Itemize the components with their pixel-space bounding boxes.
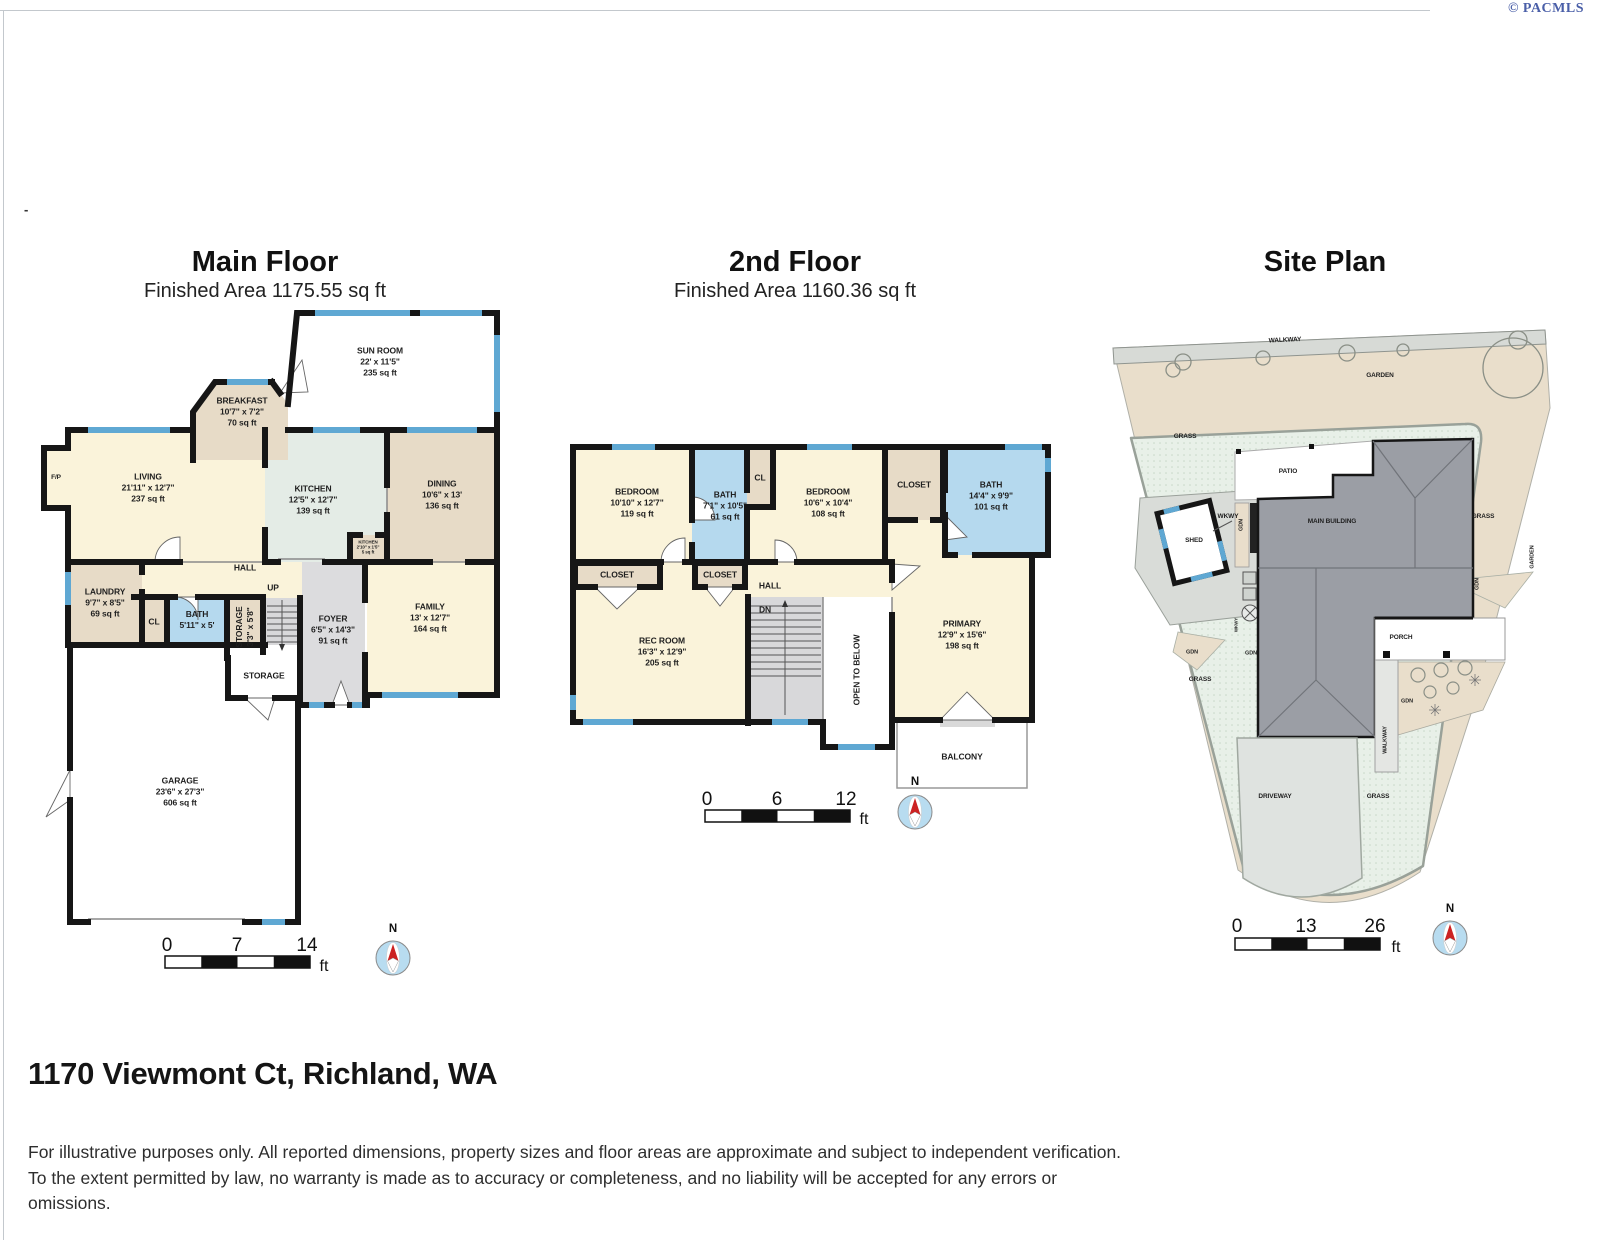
room-dims: 12'9" x 15'6" [938, 629, 987, 640]
label-gdn-w: GDN [1186, 649, 1198, 656]
room-dims: 10'10" x 12'7" [610, 497, 663, 508]
utility-box-2 [1243, 588, 1256, 600]
room-name: PRIMARY [938, 618, 987, 629]
room-label-foyer: FOYER 6'5" x 14'3" 91 sq ft [311, 613, 355, 646]
main-compass [376, 941, 410, 975]
label-grass-e: GRASS [1472, 513, 1495, 521]
label-garden-e: GARDEN [1529, 545, 1536, 568]
scale-unit: ft [1392, 939, 1401, 957]
room-name: BATH [180, 609, 215, 620]
room-name: BATH [703, 489, 747, 500]
room-area: 205 sq ft [638, 658, 687, 669]
label-walkway-top: WALKWAY [1269, 336, 1302, 346]
room-name: REC ROOM [638, 635, 687, 646]
room-name: DINING [422, 478, 462, 489]
porch-post-2 [1443, 651, 1450, 658]
site-plan-title: Site Plan [1125, 246, 1525, 279]
room-area: 69 sq ft [85, 609, 126, 620]
second-floor-plan: BEDROOM 10'10" x 12'7" 119 sq ft BATH 7'… [555, 430, 1055, 850]
room-label-living: LIVING 21'11" x 12'7" 237 sq ft [122, 471, 175, 504]
main-floor-plan-svg [30, 300, 510, 990]
room-name: BREAKFAST [216, 395, 267, 406]
room-area: 198 sq ft [938, 641, 987, 652]
room-dims: 13' x 12'7" [410, 612, 450, 623]
room-area: 136 sq ft [422, 501, 462, 512]
label-main-building: MAIN BUILDING [1308, 518, 1357, 526]
room-area: 119 sq ft [610, 509, 663, 520]
room-dims: 16'3" x 12'9" [638, 646, 687, 657]
scale-mid: 7 [232, 935, 243, 957]
room-label-primary: PRIMARY 12'9" x 15'6" 198 sq ft [938, 618, 987, 651]
site-compass [1433, 921, 1467, 955]
room-label-closet-c: CLOSET [703, 569, 737, 580]
vent-fan-icon [1242, 605, 1258, 621]
room-dims: 10'7" x 7'2" [216, 406, 267, 417]
room-label-storage: STORAGE [243, 670, 284, 681]
scale-unit: ft [320, 958, 329, 976]
label-shed: SHED [1185, 537, 1203, 545]
room-dims: 9'7" x 8'5" [85, 597, 126, 608]
room-name: FAMILY [410, 601, 450, 612]
room-name: FOYER [311, 613, 355, 624]
room-area: 606 sq ft [156, 798, 205, 809]
label-walkway-side: WALKWAY [1382, 726, 1389, 754]
room-name: BATH [969, 479, 1013, 490]
label-gdn-shed: GDN [1238, 519, 1245, 531]
room-name: GARAGE [156, 775, 205, 786]
room-label-bedroom2: BEDROOM 10'6" x 10'4" 108 sq ft [804, 486, 853, 519]
room-dims: 10'6" x 10'4" [804, 497, 853, 508]
room-name: BEDROOM [610, 486, 663, 497]
label-grass-se: GRASS [1367, 793, 1390, 801]
scale-end: 26 [1364, 916, 1385, 938]
second-compass [898, 795, 932, 829]
room-label-bath: BATH 5'11" x 5' [180, 609, 215, 631]
room-dims: 12'5" x 12'7" [289, 494, 338, 505]
second-scale-bar [705, 810, 850, 822]
label-garden: GARDEN [1366, 372, 1394, 380]
room-label-hall: HALL [759, 580, 781, 591]
top-border-line [0, 10, 1430, 11]
room-label-cl: CL [148, 616, 159, 627]
site-scale-bar [1235, 938, 1380, 950]
room-label-hall: HALL [234, 562, 256, 573]
site-plan-svg [1085, 320, 1555, 960]
scale-mid: 13 [1295, 916, 1316, 938]
room-label-dining: DINING 10'6" x 13' 136 sq ft [422, 478, 462, 511]
room-name: STORAGE [234, 606, 245, 647]
label-wkwy-c: WKWY [1235, 618, 1240, 632]
room-dims: 3'3" x 5'8" [245, 606, 256, 647]
main-scale-bar [165, 956, 310, 968]
scale-end: 12 [835, 789, 856, 811]
scale-end: 14 [296, 935, 317, 957]
property-address: 1170 Viewmont Ct, Richland, WA [28, 1056, 497, 1092]
room-area: 5 sq ft [357, 550, 380, 555]
floorplan-sheet: © PACMLS - Main Floor Finished Area 1175… [0, 0, 1600, 1247]
room-label-up: UP [267, 582, 279, 593]
room-label-cl: CL [754, 472, 765, 483]
room-label-bath2: BATH 14'4" x 9'9" 101 sq ft [969, 479, 1013, 512]
label-gdn-e: GDN [1474, 578, 1481, 590]
room-name: KITCHEN [289, 483, 338, 494]
room-area: 91 sq ft [311, 636, 355, 647]
site-plan: WALKWAY GARDEN GRASS PATIO MAIN BUILDING… [1085, 320, 1555, 960]
scale-start: 0 [702, 789, 713, 811]
room-area: 108 sq ft [804, 509, 853, 520]
room-name: LAUNDRY [85, 586, 126, 597]
room-dims: 21'11" x 12'7" [122, 482, 175, 493]
disclaimer-text: For illustrative purposes only. All repo… [28, 1140, 1133, 1217]
room-dims: 10'6" x 13' [422, 489, 462, 500]
room-dims: 14'4" x 9'9" [969, 490, 1013, 501]
room-label-bedroom1: BEDROOM 10'10" x 12'7" 119 sq ft [610, 486, 663, 519]
room-area: 139 sq ft [289, 506, 338, 517]
driveway-area [1237, 738, 1362, 897]
room-label-sunroom: SUN ROOM 22' x 11'5" 235 sq ft [357, 345, 403, 378]
room-name: BEDROOM [804, 486, 853, 497]
label-wkwy: WKWY [1218, 513, 1239, 521]
room-area: 235 sq ft [357, 368, 403, 379]
room-label-bath1: BATH 7'1" x 10'5" 61 sq ft [703, 489, 747, 522]
room-label-rec-room: REC ROOM 16'3" x 12'9" 205 sq ft [638, 635, 687, 668]
label-gdn-c: GDN [1245, 650, 1257, 657]
room-label-laundry: LAUNDRY 9'7" x 8'5" 69 sq ft [85, 586, 126, 619]
second-floor-title: 2nd Floor [595, 246, 995, 279]
room-name: SUN ROOM [357, 345, 403, 356]
label-grass-nw: GRASS [1174, 433, 1197, 441]
room-label-balcony: BALCONY [941, 751, 982, 762]
room-area: 164 sq ft [410, 624, 450, 635]
walkway-side-area [1375, 660, 1398, 772]
scale-start: 0 [162, 935, 173, 957]
scale-mid: 6 [772, 789, 783, 811]
scale-unit: ft [860, 811, 869, 829]
room-label-storage-closet: STORAGE 3'3" x 5'8" [234, 606, 256, 647]
room-label-closet-a: CLOSET [897, 479, 931, 490]
room-area: 61 sq ft [703, 512, 747, 523]
scale-start: 0 [1232, 916, 1243, 938]
room-dims: 22' x 11'5" [357, 356, 403, 367]
room-label-kitchen-closet: KITCHEN 2'10" x 1'5" 5 sq ft [357, 541, 380, 556]
main-floor-title: Main Floor [65, 246, 465, 279]
patio-post-1 [1236, 449, 1241, 454]
second-floor-subtitle: Finished Area 1160.36 sq ft [595, 280, 995, 303]
room-label-breakfast: BREAKFAST 10'7" x 7'2" 70 sq ft [216, 395, 267, 428]
room-label-open-below: OPEN TO BELOW [851, 635, 862, 706]
patio-post-2 [1309, 444, 1314, 449]
room-label-garage: GARAGE 23'6" x 27'3" 606 sq ft [156, 775, 205, 808]
left-border-line [3, 10, 4, 1240]
room-area: 237 sq ft [122, 494, 175, 505]
main-floor-plan: SUN ROOM 22' x 11'5" 235 sq ft BREAKFAST… [30, 300, 510, 990]
room-dims: 23'6" x 27'3" [156, 786, 205, 797]
label-gdn-plants: GDN [1401, 698, 1413, 705]
label-patio: PATIO [1279, 468, 1297, 476]
label-driveway: DRIVEWAY [1258, 793, 1291, 801]
label-porch: PORCH [1390, 634, 1413, 642]
pacmls-watermark: © PACMLS [1508, 1, 1584, 17]
room-label-dn: DN [759, 604, 771, 615]
room-area: 70 sq ft [216, 418, 267, 429]
room-label-family: FAMILY 13' x 12'7" 164 sq ft [410, 601, 450, 634]
utility-box-1 [1243, 572, 1256, 584]
compass-north-label: N [1446, 903, 1454, 915]
room-label-fireplace: F/P [51, 474, 61, 482]
compass-north-label: N [389, 923, 397, 935]
porch-post-1 [1383, 651, 1390, 658]
room-dims: 7'1" x 10'5" [703, 500, 747, 511]
room-dims: 5'11" x 5' [180, 620, 215, 631]
stray-dash: - [24, 202, 28, 217]
label-grass-sw: GRASS [1189, 676, 1212, 684]
room-label-closet-b: CLOSET [600, 569, 634, 580]
room-dims: 6'5" x 14'3" [311, 624, 355, 635]
compass-north-label: N [911, 776, 919, 788]
room-name: LIVING [122, 471, 175, 482]
room-area: 101 sq ft [969, 502, 1013, 513]
room-label-kitchen: KITCHEN 12'5" x 12'7" 139 sq ft [289, 483, 338, 516]
